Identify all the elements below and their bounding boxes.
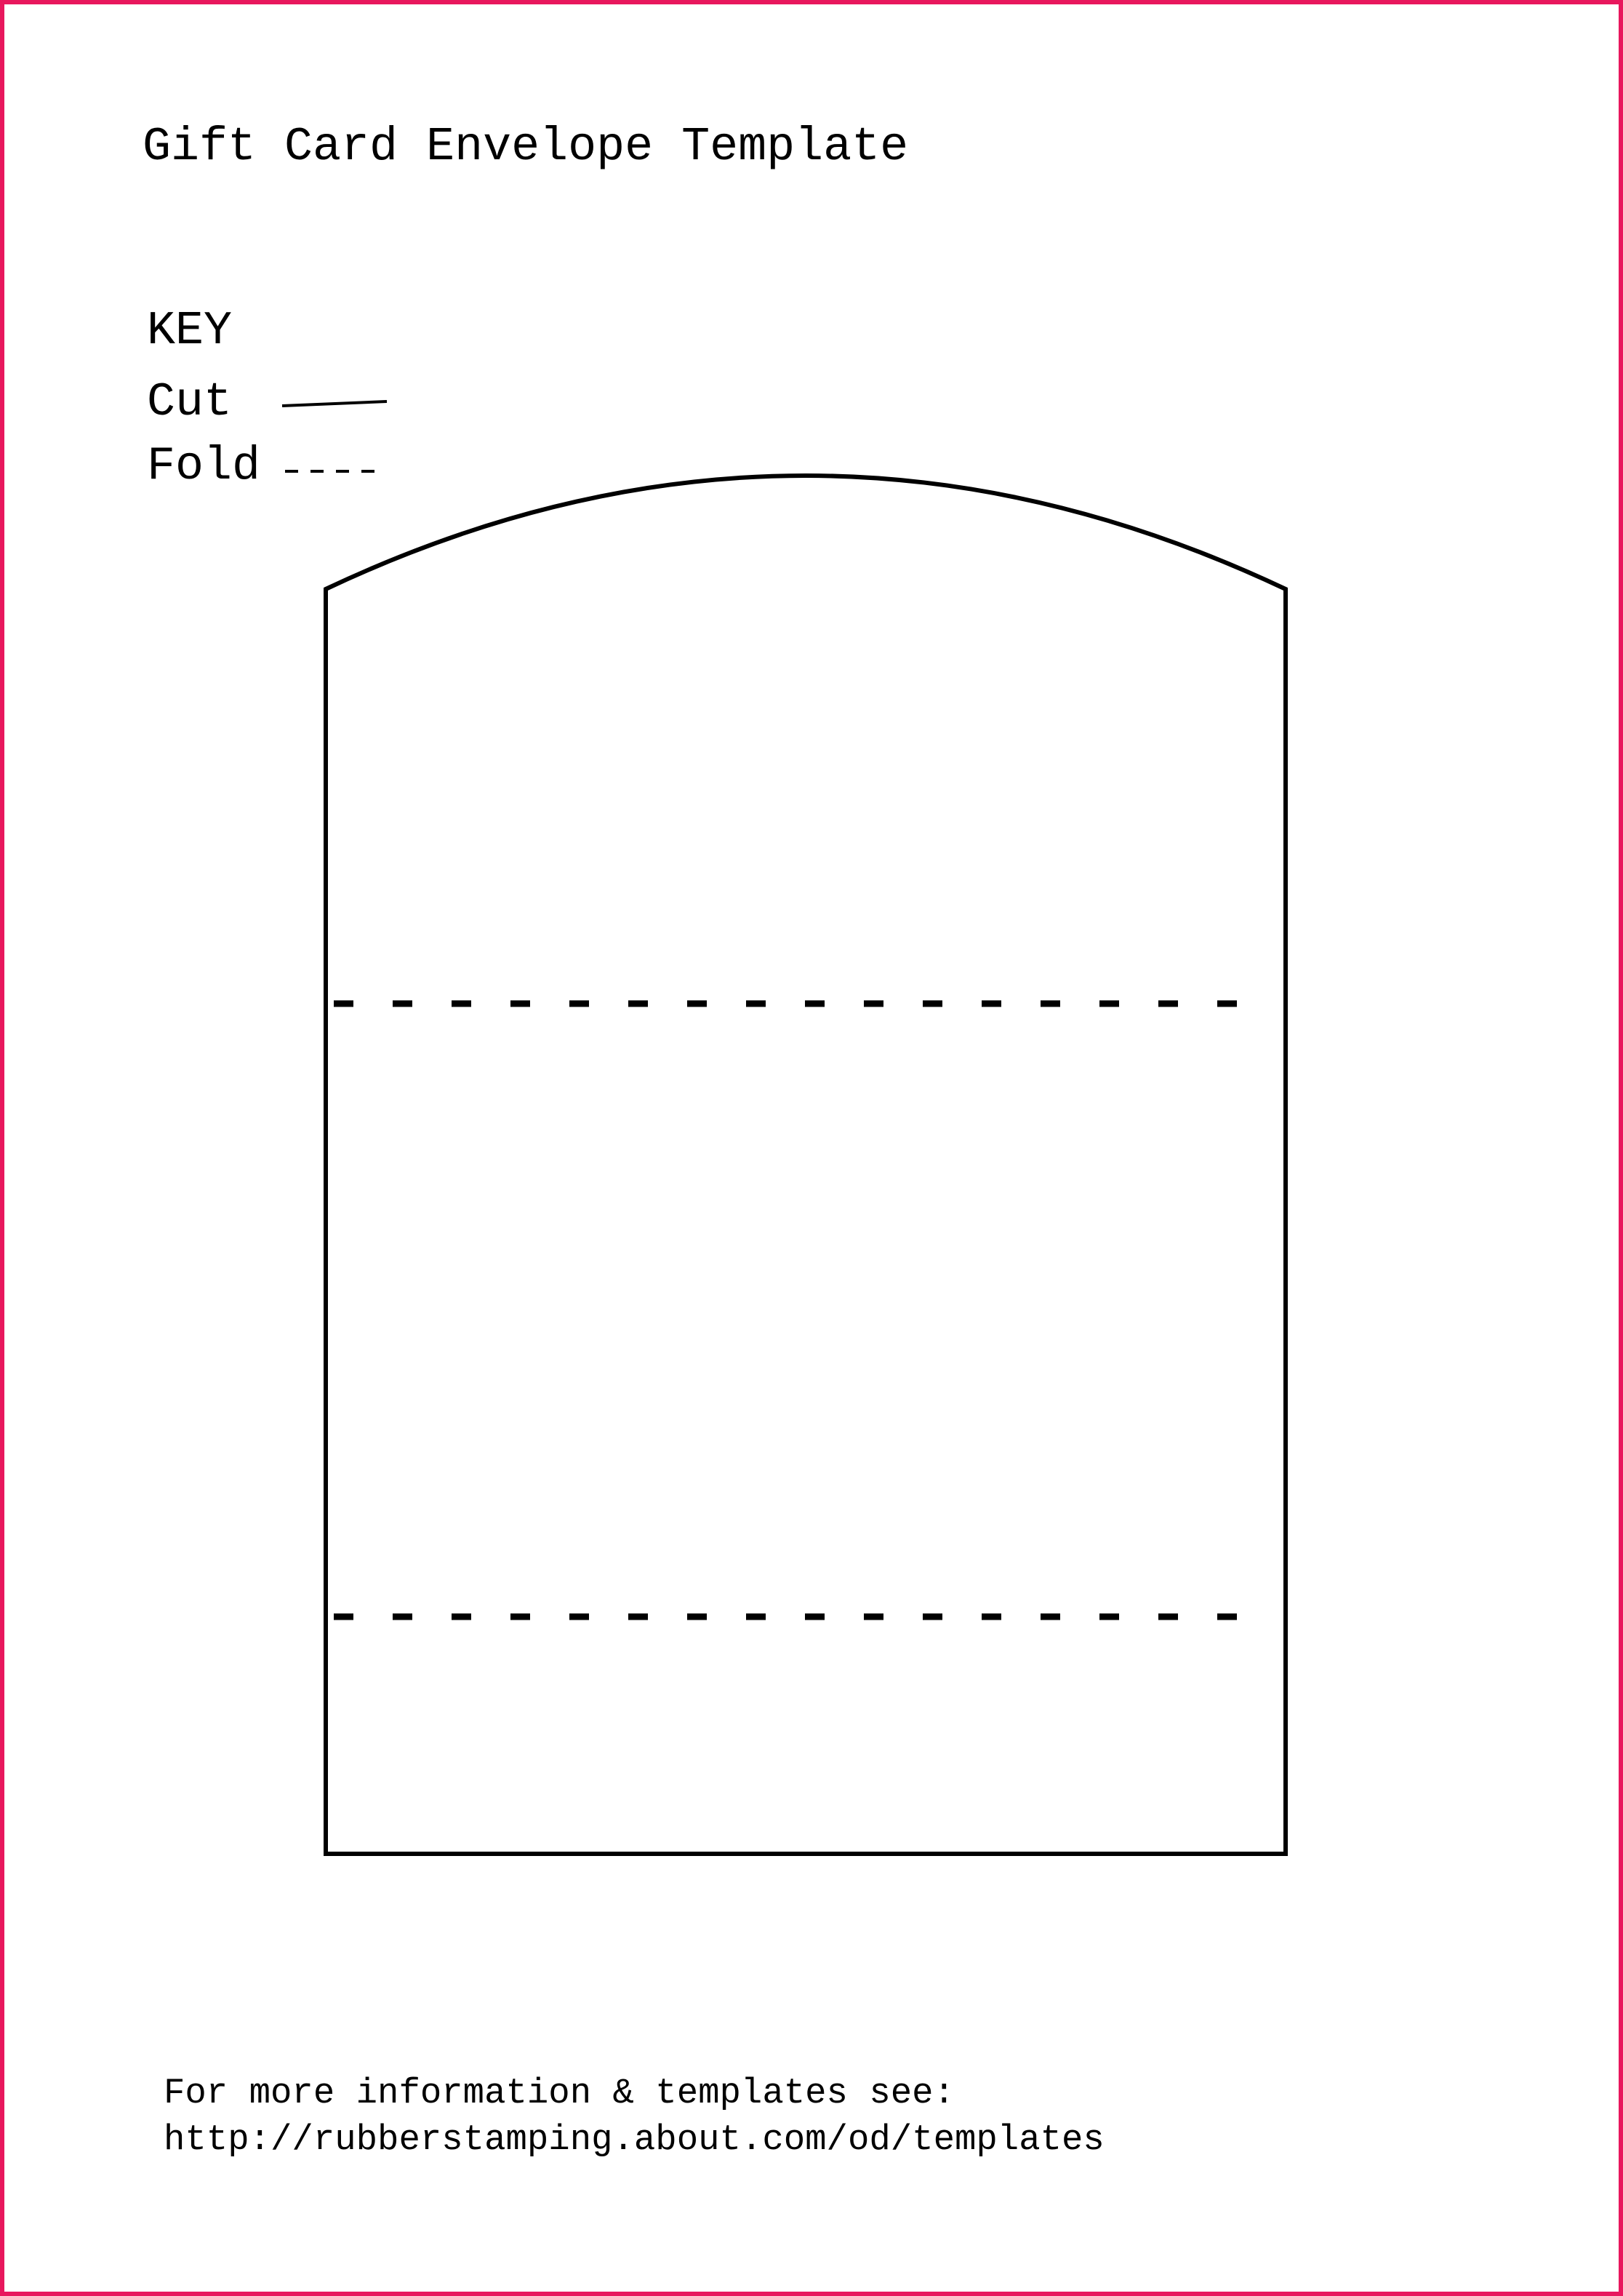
envelope-template-drawing	[0, 0, 1623, 2296]
footer-text: For more information & templates see:htt…	[164, 2070, 1105, 2163]
envelope-outline	[326, 476, 1286, 1854]
key-cut-line-sample	[282, 401, 387, 406]
footer-info-line: For more information & templates see:	[164, 2073, 955, 2113]
footer-url: http://rubberstamping.about.com/od/templ…	[164, 2119, 1105, 2160]
